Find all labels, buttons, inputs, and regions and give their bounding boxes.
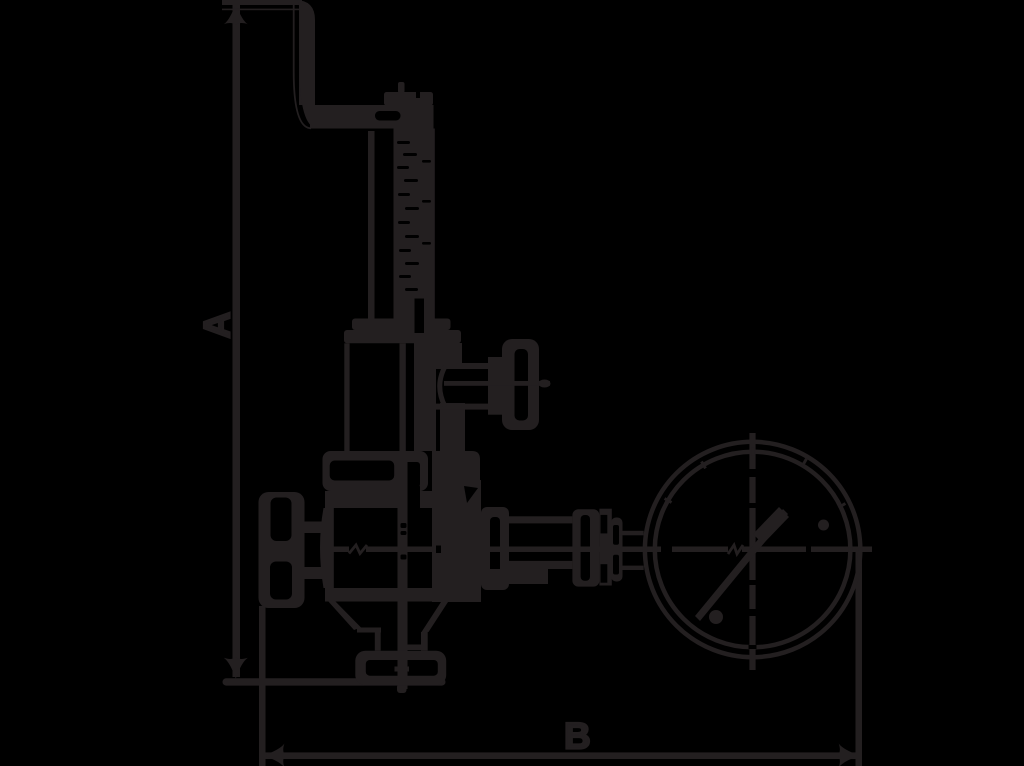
- svg-text:A: A: [197, 312, 238, 339]
- svg-text:B: B: [564, 716, 591, 757]
